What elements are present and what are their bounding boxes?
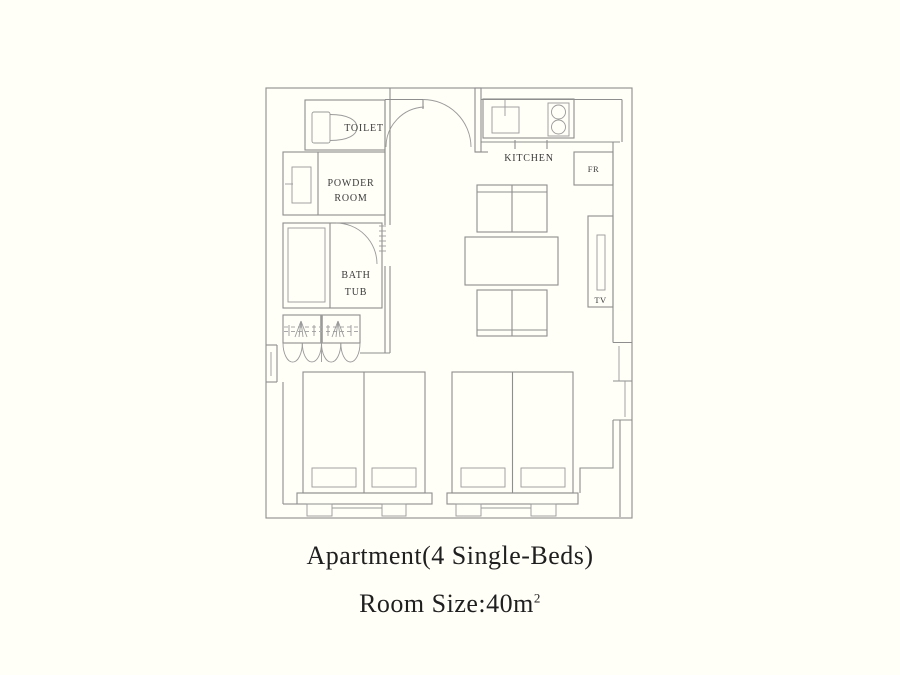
- room-toilet: TOILET: [305, 100, 385, 150]
- kitchen-sink-icon: [492, 100, 519, 133]
- powder-room-label-line1: POWDER: [327, 178, 374, 189]
- pillow-icon: [461, 468, 505, 487]
- left-wall: [266, 345, 297, 504]
- bath-tub-label-line2: TUB: [345, 287, 367, 298]
- floor-plan: TOILET POWDER ROOM BATH TUB: [0, 0, 900, 675]
- tv-label: TV: [594, 295, 607, 305]
- floor-plan-drawing: TOILET POWDER ROOM BATH TUB: [0, 0, 900, 675]
- bed-headboard: [447, 493, 578, 504]
- vanity-sink-icon: [285, 167, 311, 203]
- toilet-label: TOILET: [344, 123, 384, 134]
- window-right-icon: [613, 343, 632, 421]
- pillow-icon: [372, 468, 416, 487]
- room-size-prefix: Room Size:40: [359, 589, 513, 618]
- apartment-title: Apartment(4 Single-Beds): [0, 541, 900, 571]
- fridge-label: FR: [588, 164, 599, 174]
- fridge-box: FR: [574, 152, 613, 185]
- bathtub-icon: [288, 228, 325, 302]
- bed-headboard: [297, 493, 432, 504]
- pillow-icon: [312, 468, 356, 487]
- entrance-door-swing-icon: [386, 100, 471, 148]
- pillow-icon: [521, 468, 565, 487]
- bench-bottom: [477, 290, 547, 336]
- tv-unit: TV: [588, 216, 613, 307]
- powder-room-label-line2: ROOM: [334, 193, 367, 204]
- bench-top: [477, 185, 547, 232]
- right-wall: [580, 142, 632, 517]
- room-bath: BATH TUB: [283, 223, 386, 308]
- hanger-icon: [328, 321, 351, 337]
- window-left-icon: [266, 345, 277, 382]
- closet-folding-doors-icon: [283, 343, 360, 362]
- bath-tub-label-line1: BATH: [341, 270, 370, 281]
- stove-icon: [548, 103, 569, 136]
- kitchen-counter: KITCHEN: [481, 99, 620, 164]
- bath-door-swing-icon: [336, 223, 377, 264]
- room-size-superscript: 2: [534, 590, 541, 605]
- hanger-icon: [289, 321, 314, 337]
- bed-pair-right: [447, 372, 578, 516]
- dining-table: [465, 237, 558, 285]
- tv-screen-icon: [597, 235, 605, 290]
- room-size-text: Room Size:40m2: [0, 589, 900, 619]
- closet: [283, 315, 360, 362]
- kitchen-label: KITCHEN: [504, 153, 553, 164]
- bed-pair-left: [297, 372, 432, 516]
- dining-area: [465, 185, 558, 336]
- room-size-unit: m: [513, 589, 534, 618]
- room-powder: POWDER ROOM: [283, 152, 385, 215]
